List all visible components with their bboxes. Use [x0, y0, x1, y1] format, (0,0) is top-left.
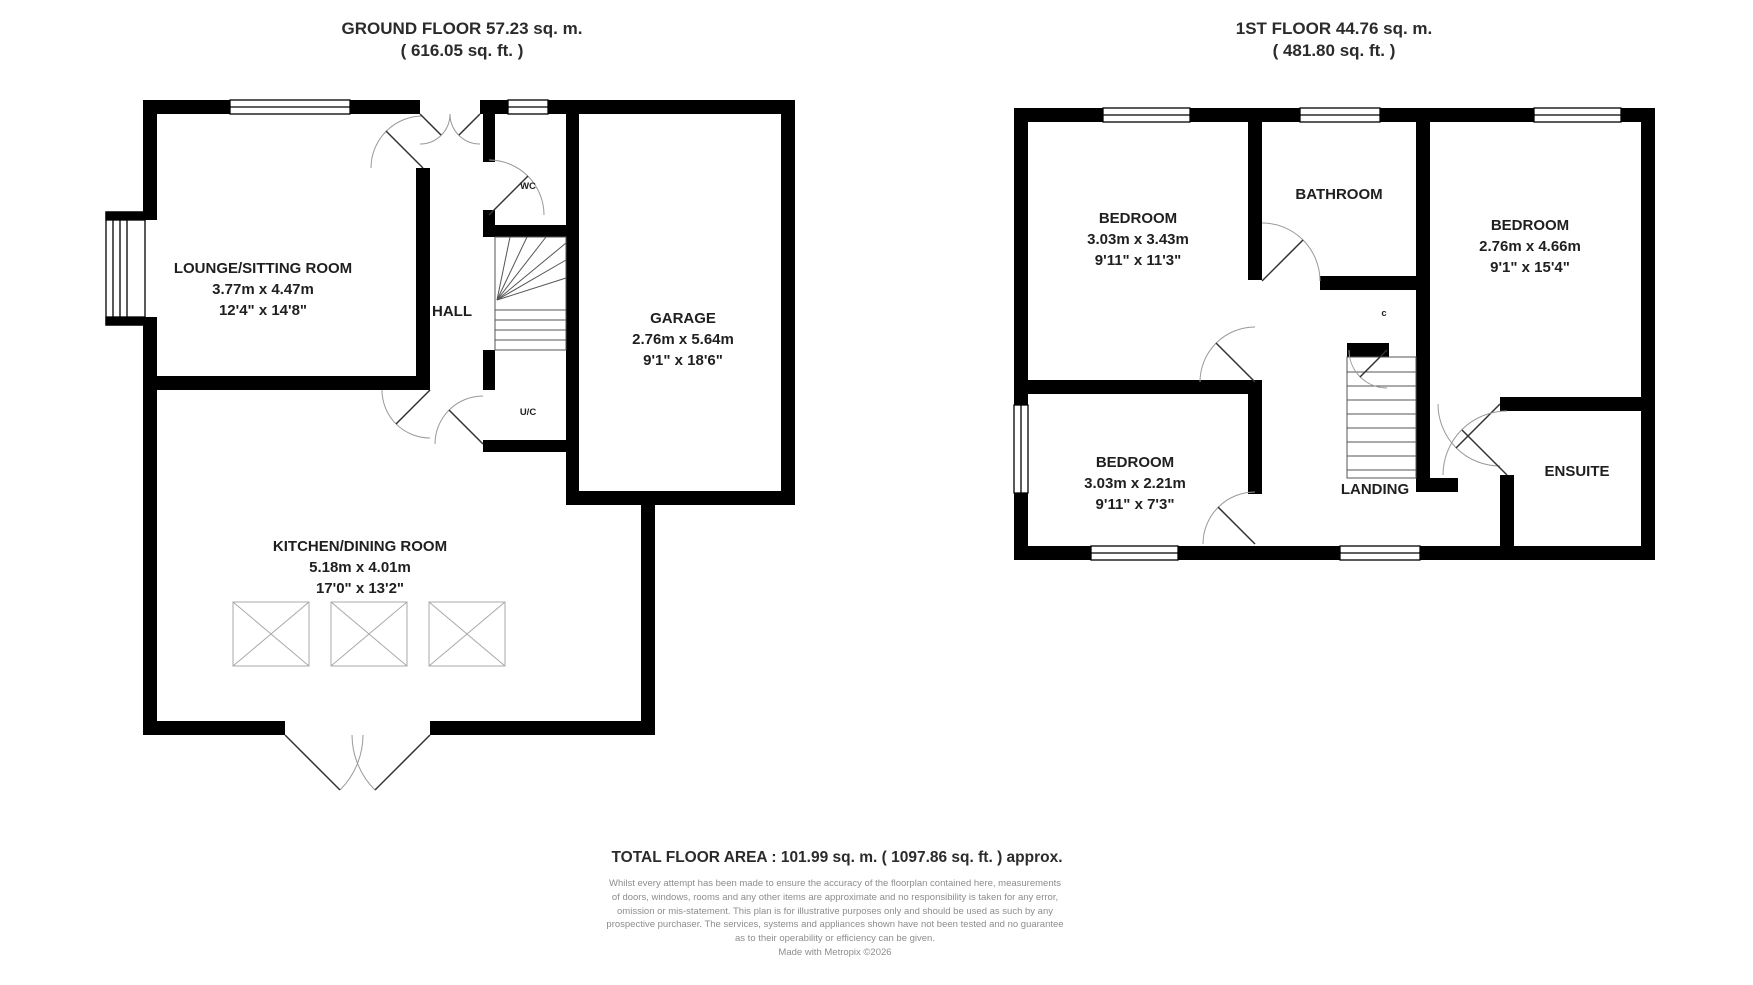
room-label-bedroom2: BEDROOM 2.76m x 4.66m 9'1" x 15'4" — [1479, 215, 1581, 278]
room-name: HALL — [432, 301, 472, 322]
room-dim-metric: 2.76m x 5.64m — [632, 329, 734, 350]
window — [1340, 546, 1420, 560]
first-floor-title-line2: ( 481.80 sq. ft. ) — [1236, 40, 1433, 62]
room-label-kitchen: KITCHEN/DINING ROOM 5.18m x 4.01m 17'0" … — [273, 536, 447, 599]
room-name: KITCHEN/DINING ROOM — [273, 536, 447, 557]
window — [1091, 546, 1178, 560]
ground-floor-title-line2: ( 616.05 sq. ft. ) — [342, 40, 583, 62]
disclaimer-line: omission or mis-statement. This plan is … — [606, 905, 1063, 919]
room-dim-metric: 3.77m x 4.47m — [174, 279, 352, 300]
disclaimer-line: prospective purchaser. The services, sys… — [606, 918, 1063, 932]
room-label-landing: LANDING — [1341, 479, 1409, 500]
room-dim-metric: 5.18m x 4.01m — [273, 557, 447, 578]
window — [508, 100, 548, 114]
first-floor-stairs — [1347, 357, 1416, 478]
floorplan-drawing — [0, 0, 1753, 985]
first-floor-title-line1: 1ST FLOOR 44.76 sq. m. — [1236, 18, 1433, 40]
door-bathroom — [1262, 223, 1320, 281]
first-floor-title: 1ST FLOOR 44.76 sq. m. ( 481.80 sq. ft. … — [1236, 18, 1433, 62]
window — [1103, 108, 1190, 122]
door-bedroom1 — [1200, 327, 1255, 382]
room-dim-imperial: 9'1" x 18'6" — [632, 350, 734, 371]
room-label-wc: WC — [520, 181, 536, 192]
room-label-uc: U/C — [520, 407, 536, 418]
room-label-cupboard: c — [1381, 308, 1386, 319]
total-floor-area: TOTAL FLOOR AREA : 101.99 sq. m. ( 1097.… — [611, 849, 1062, 867]
room-name: LOUNGE/SITTING ROOM — [174, 258, 352, 279]
ground-floor-stairs — [495, 237, 566, 350]
room-dim-imperial: 9'1" x 15'4" — [1479, 257, 1581, 278]
door-kitchen — [382, 390, 430, 438]
door-ensuite — [1443, 411, 1507, 475]
room-name: ENSUITE — [1544, 461, 1609, 482]
bay-window — [106, 212, 145, 325]
door-bedroom3 — [1203, 492, 1255, 544]
disclaimer-line: Made with Metropix ©2026 — [606, 946, 1063, 960]
door-french-double — [285, 735, 430, 790]
room-dim-imperial: 12'4" x 14'8" — [174, 300, 352, 321]
room-name: GARAGE — [632, 308, 734, 329]
room-label-lounge: LOUNGE/SITTING ROOM 3.77m x 4.47m 12'4" … — [174, 258, 352, 321]
room-name: LANDING — [1341, 479, 1409, 500]
room-label-bathroom: BATHROOM — [1295, 184, 1382, 205]
room-name: BEDROOM — [1084, 452, 1186, 473]
kitchen-appliances — [233, 602, 505, 666]
disclaimer-text: Whilst every attempt has been made to en… — [606, 877, 1063, 960]
appliance — [429, 602, 505, 666]
ground-floor-title-line1: GROUND FLOOR 57.23 sq. m. — [342, 18, 583, 40]
room-label-bedroom1: BEDROOM 3.03m x 3.43m 9'11" x 11'3" — [1087, 208, 1189, 271]
room-name: c — [1381, 308, 1386, 319]
door-front-double — [420, 114, 480, 144]
room-label-ensuite: ENSUITE — [1544, 461, 1609, 482]
window — [1014, 405, 1028, 493]
door-uc — [435, 396, 483, 444]
room-dim-metric: 3.03m x 3.43m — [1087, 229, 1189, 250]
disclaimer-line: Whilst every attempt has been made to en… — [606, 877, 1063, 891]
appliance — [233, 602, 309, 666]
disclaimer-line: as to their operability or efficiency ca… — [606, 932, 1063, 946]
room-name: BEDROOM — [1087, 208, 1189, 229]
floorplan-page: GROUND FLOOR 57.23 sq. m. ( 616.05 sq. f… — [0, 0, 1753, 985]
room-label-bedroom3: BEDROOM 3.03m x 2.21m 9'11" x 7'3" — [1084, 452, 1186, 515]
room-name: U/C — [520, 407, 536, 418]
window — [1300, 108, 1380, 122]
ground-floor-walls — [143, 100, 795, 735]
room-label-garage: GARAGE 2.76m x 5.64m 9'1" x 18'6" — [632, 308, 734, 371]
window — [1534, 108, 1621, 122]
room-dim-imperial: 17'0" x 13'2" — [273, 578, 447, 599]
room-dim-metric: 2.76m x 4.66m — [1479, 236, 1581, 257]
door-lounge — [371, 116, 423, 168]
ground-floor-plan — [106, 100, 795, 790]
room-name: BATHROOM — [1295, 184, 1382, 205]
room-name: WC — [520, 181, 536, 192]
room-dim-imperial: 9'11" x 11'3" — [1087, 250, 1189, 271]
ground-floor-title: GROUND FLOOR 57.23 sq. m. ( 616.05 sq. f… — [342, 18, 583, 62]
room-dim-imperial: 9'11" x 7'3" — [1084, 494, 1186, 515]
disclaimer-line: of doors, windows, rooms and any other i… — [606, 891, 1063, 905]
appliance — [331, 602, 407, 666]
room-dim-metric: 3.03m x 2.21m — [1084, 473, 1186, 494]
window — [230, 100, 350, 114]
room-name: BEDROOM — [1479, 215, 1581, 236]
room-label-hall: HALL — [432, 301, 472, 322]
